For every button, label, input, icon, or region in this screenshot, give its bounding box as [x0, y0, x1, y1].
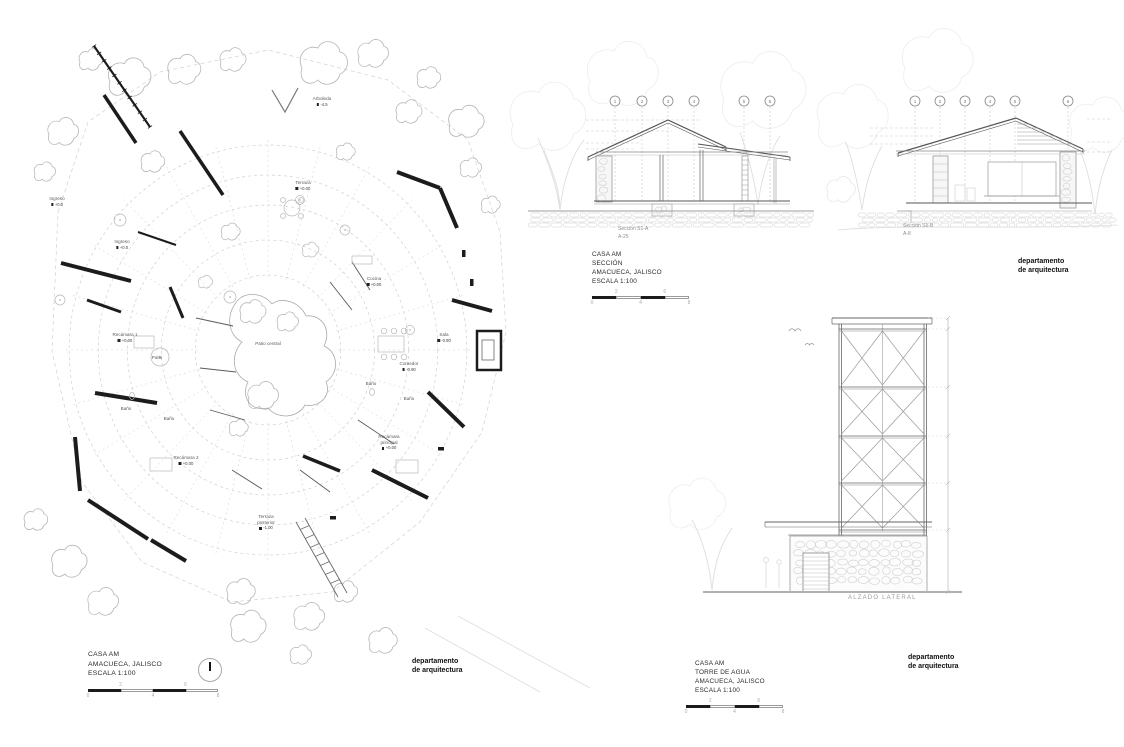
birds-icon	[789, 329, 814, 345]
tower-elevation	[669, 316, 962, 594]
plan-label-patio: Patio	[152, 355, 162, 361]
base-door	[803, 553, 829, 592]
tower-cap	[832, 318, 932, 324]
plan-title: CASA AM	[88, 650, 162, 660]
section-credit: departamentode arquitectura	[1018, 258, 1069, 276]
door-jambs	[330, 250, 474, 520]
plan-label-ingreso-2: Ingreso +0.0	[114, 239, 129, 250]
section-drawings: 1 2 3 4 5 6	[510, 28, 1124, 230]
plan-label-cocina: Cocina +0.00	[367, 276, 382, 287]
section-scalebar: 0 2 4 6 8	[592, 296, 689, 299]
figures	[764, 558, 782, 589]
plan-label-comedor: Comedor -0.90	[400, 361, 419, 372]
plan-label-arboleda: Arboleda -4.5	[313, 96, 331, 107]
level-lines-b	[870, 119, 1112, 152]
grid-bubbles-b: 1 2 3 4 5 6	[910, 96, 1073, 106]
line-art: 1 2 3 4 5 6	[0, 0, 1124, 747]
plan-label-bano-2: Baño	[164, 416, 175, 422]
plan-label-ingreso-1: Ingreso +0.0	[49, 196, 64, 207]
section-a: 1 2 3 4 5 6	[528, 96, 814, 227]
tower-title-block: CASA AM TORRE DE AGUA AMACUECA, JALISCO …	[695, 660, 765, 696]
post-a	[774, 158, 776, 203]
tower-tree	[692, 520, 732, 590]
plan-trees	[24, 39, 500, 664]
chevron-structure	[272, 88, 298, 112]
fireplace-box	[477, 331, 501, 370]
plan-walls	[61, 46, 492, 561]
plan-label-bano-3: Baño	[366, 381, 377, 387]
ladder-column-a	[742, 156, 748, 201]
drawing-sheet: 1 2 3 4 5 6	[0, 0, 1124, 747]
interior-furniture-b	[955, 185, 975, 201]
plan-label-bano-4: Baño	[404, 396, 415, 402]
plan-label-terraza-posterior: Terraza posterior -1.00	[249, 514, 283, 531]
plan-label-patio-central: Patio central	[251, 341, 285, 347]
north-arrow-icon	[198, 658, 222, 682]
section-b: 1 2 3 4 5 6	[838, 96, 1118, 230]
plan-scalebar: 0 2 4 6 8	[88, 689, 218, 692]
canopy	[765, 522, 932, 535]
tower-scalebar: 0 2 4 6 8	[686, 705, 783, 708]
floor-plan	[24, 39, 590, 692]
patio-outline	[230, 294, 336, 416]
section-title-block: CASA AM SECCIÓN AMACUECA, JALISCO ESCALA…	[592, 251, 662, 287]
plan-label-recamara-1: Recámara 1 +0.00	[112, 332, 137, 343]
ground-hatch-b	[858, 213, 1116, 227]
columns-a	[660, 150, 703, 201]
plan-credit: departamentode arquitectura	[412, 658, 463, 676]
caption-tower: ALZADO LATERAL	[848, 595, 917, 601]
plan-label-bano-1: Baño	[121, 406, 132, 412]
plan-label-recamara-principal: Recámara principal +0.00	[372, 434, 406, 451]
tower-credit: departamentode arquitectura	[908, 654, 959, 672]
caption-section-a: Sección S1-A A-25	[618, 226, 648, 241]
caption-section-b: Sección S1-B A-8	[903, 223, 933, 238]
plan-partitions	[196, 262, 394, 492]
plan-title-block: CASA AM AMACUECA, JALISCO ESCALA 1:100	[88, 650, 162, 679]
grid-bubbles-a: 1 2 3 4 5 6	[610, 96, 775, 106]
plan-label-terraza: Terraza +0.00	[295, 180, 310, 191]
radial-grid	[64, 137, 472, 563]
dimension-line	[946, 316, 950, 594]
stairs	[296, 518, 347, 597]
plan-label-sala: Sala -0.90	[437, 332, 451, 343]
site-paths	[425, 616, 590, 692]
plan-label-recamara-2: Recámara 2 +0.00	[173, 455, 198, 466]
dimension-extensions	[928, 318, 948, 592]
